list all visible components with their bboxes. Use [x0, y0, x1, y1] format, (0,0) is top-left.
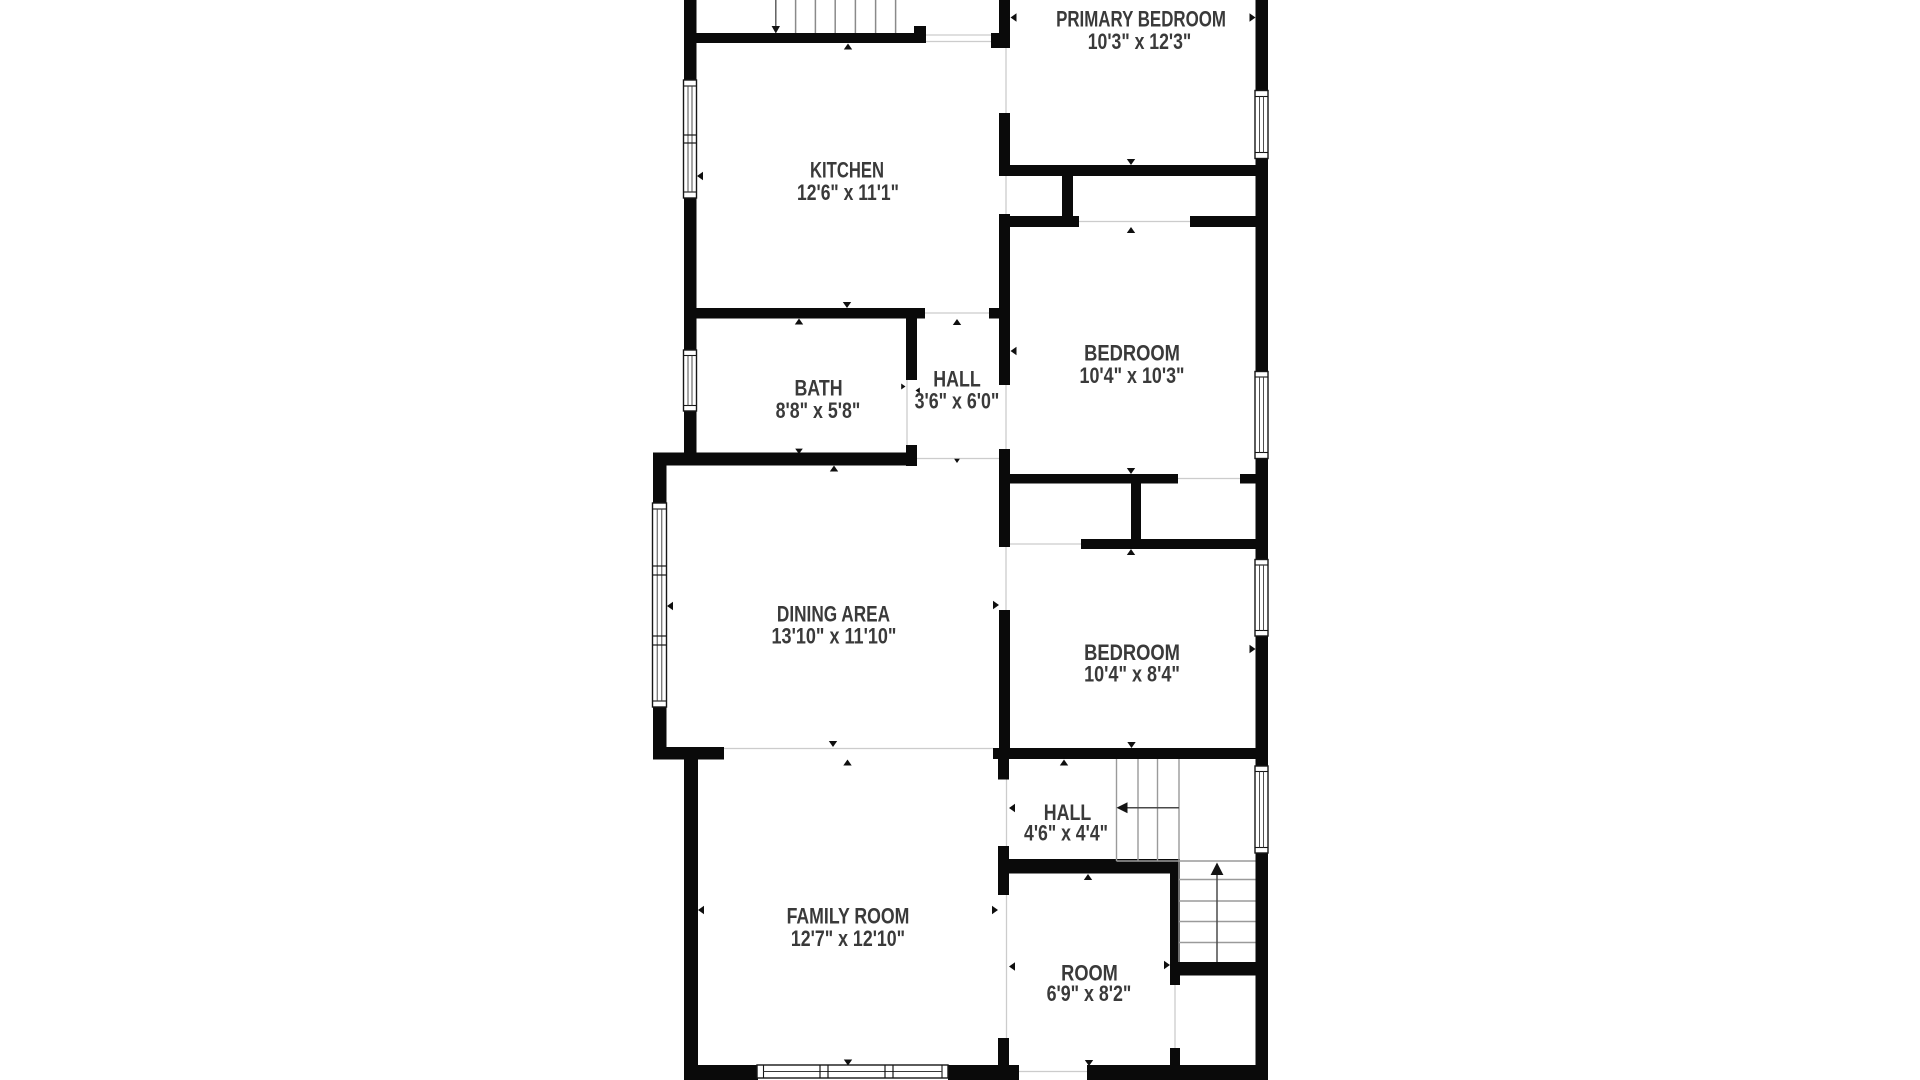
svg-text:6'9" x 8'2": 6'9" x 8'2"	[1047, 982, 1132, 1006]
svg-text:KITCHEN: KITCHEN	[810, 158, 884, 183]
svg-text:13'10" x 11'10": 13'10" x 11'10"	[772, 625, 897, 649]
svg-text:10'4" x 8'4": 10'4" x 8'4"	[1084, 663, 1180, 687]
svg-text:12'6" x 11'1": 12'6" x 11'1"	[797, 181, 899, 205]
svg-text:4'6" x 4'4": 4'6" x 4'4"	[1024, 822, 1108, 846]
svg-text:10'4" x 10'3": 10'4" x 10'3"	[1080, 364, 1185, 388]
svg-text:8'8" x 5'8": 8'8" x 5'8"	[776, 399, 861, 423]
svg-text:10'3" x 12'3": 10'3" x 12'3"	[1088, 30, 1192, 54]
svg-text:BEDROOM: BEDROOM	[1084, 342, 1180, 366]
svg-text:DINING AREA: DINING AREA	[777, 603, 890, 627]
svg-text:BEDROOM: BEDROOM	[1084, 642, 1180, 666]
svg-text:HALL: HALL	[933, 368, 980, 392]
svg-text:FAMILY ROOM: FAMILY ROOM	[787, 905, 910, 929]
svg-text:3'6" x 6'0": 3'6" x 6'0"	[915, 390, 1000, 414]
svg-text:PRIMARY BEDROOM: PRIMARY BEDROOM	[1056, 7, 1226, 32]
svg-text:12'7" x 12'10": 12'7" x 12'10"	[791, 927, 905, 951]
svg-text:BATH: BATH	[794, 377, 842, 401]
